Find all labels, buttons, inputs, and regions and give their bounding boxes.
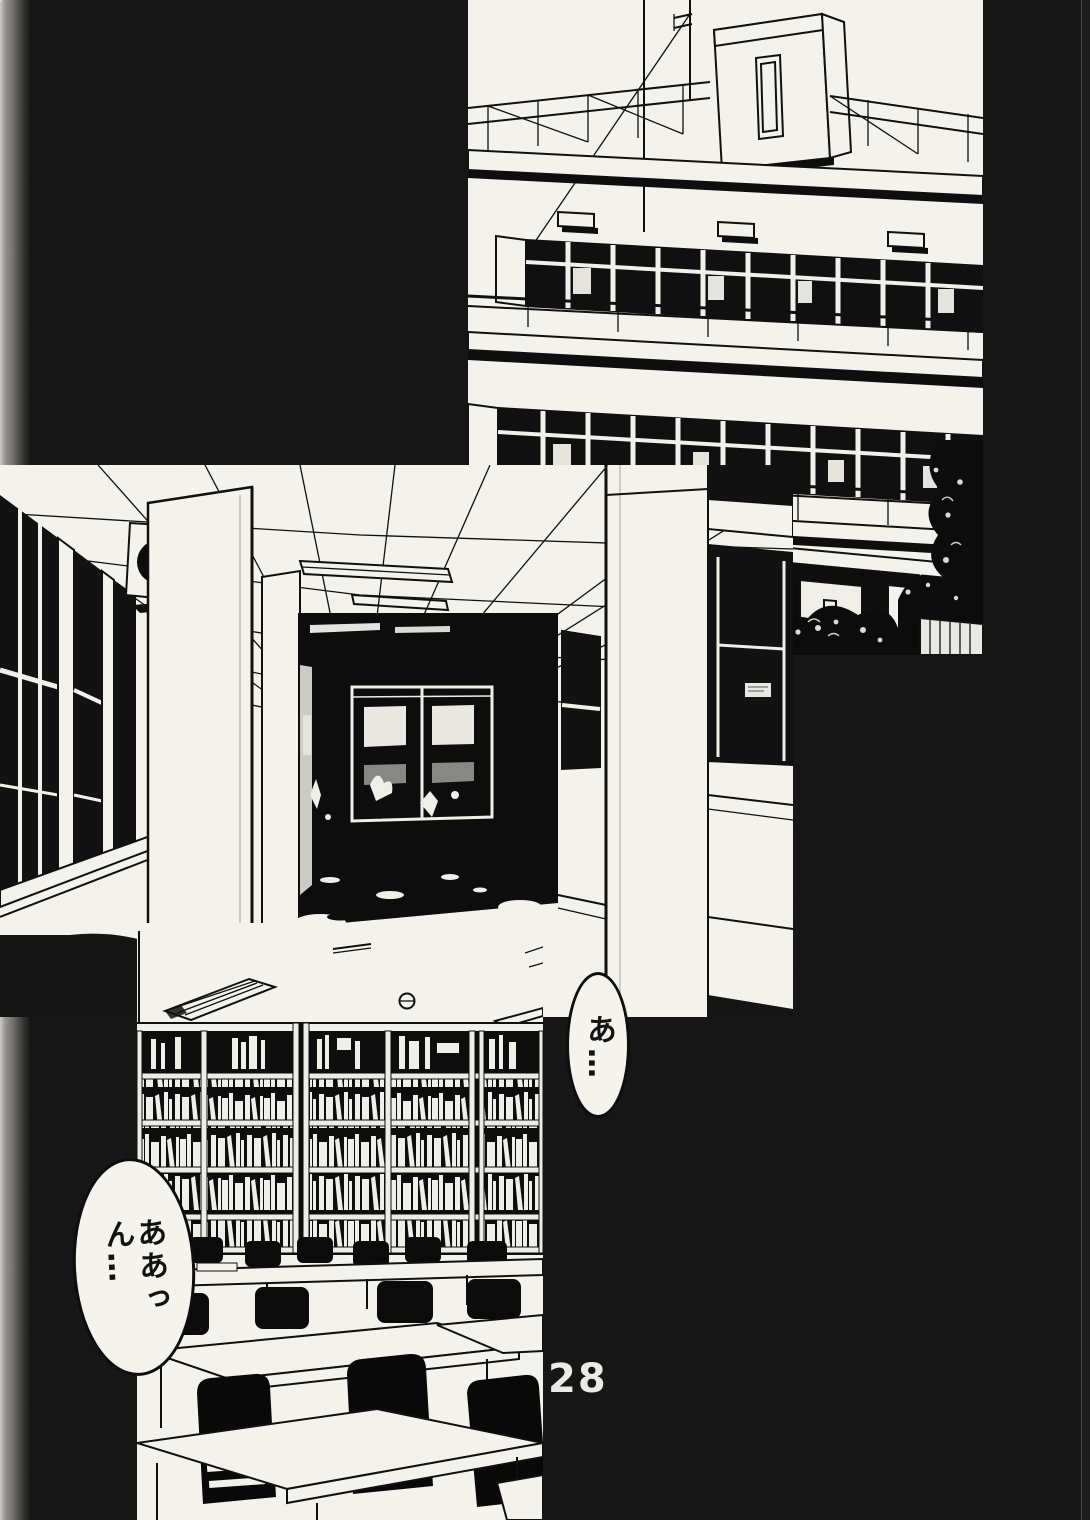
corridor-dark-end [286,613,558,951]
page-number: 28 [548,1356,608,1402]
speech-text-col-right: ああっ [132,1216,167,1316]
library-art [137,923,543,1520]
page-right-margin [1082,0,1090,1520]
black-floor-corner [0,934,138,1017]
notice-paper [745,683,771,697]
scan-dust-specks [0,0,2,2]
bookshelf-wall [137,1023,543,1255]
page-edge-line [1081,0,1082,1520]
right-foreground-pillar [606,465,708,1017]
speech-text: あ… [583,1008,613,1082]
speech-text-col-left: ん… [100,1218,135,1318]
manga-page: あ… ああっ ん… 28 [0,0,1090,1520]
panel-library-interior [137,923,543,1520]
speech-bubble-small: あ… [566,972,630,1118]
speech-text-columns: ああっ ん… [98,1216,169,1318]
